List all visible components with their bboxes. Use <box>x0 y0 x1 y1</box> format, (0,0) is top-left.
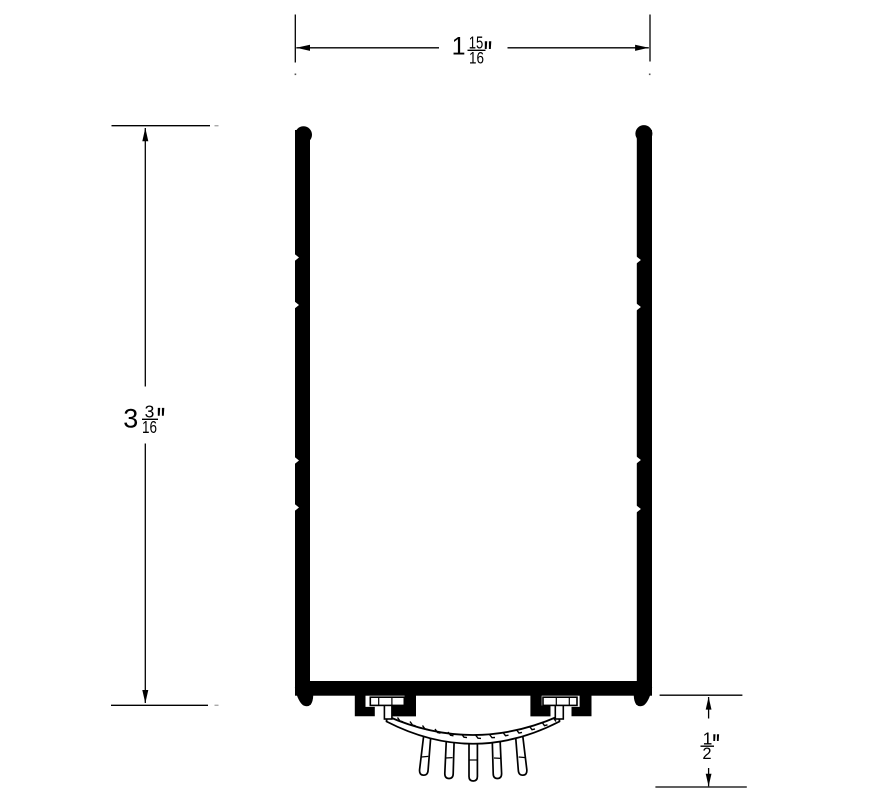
svg-text:16: 16 <box>469 48 484 67</box>
svg-text:3: 3 <box>123 404 138 434</box>
svg-text:16: 16 <box>142 417 157 437</box>
svg-text:1: 1 <box>452 33 466 61</box>
svg-text:2: 2 <box>702 745 711 763</box>
